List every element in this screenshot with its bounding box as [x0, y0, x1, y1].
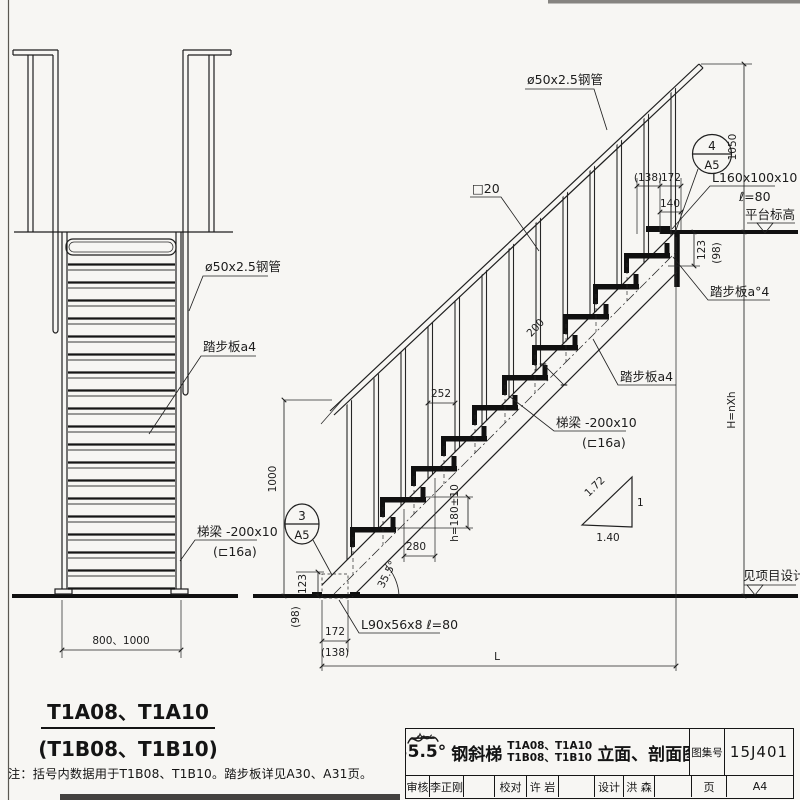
svg-text:(138): (138): [634, 172, 662, 184]
page-label: 页: [691, 776, 726, 797]
svg-text:□20: □20: [472, 181, 500, 196]
svg-text:(138): (138): [321, 647, 349, 659]
svg-text:A5: A5: [294, 528, 309, 542]
svg-text:1.72: 1.72: [582, 474, 607, 499]
caption-models-line2: (T1B08、T1B10): [28, 733, 228, 762]
page-number: A4: [726, 776, 793, 797]
svg-text:平台标高: 平台标高: [745, 207, 795, 222]
detail-bubble-bottom: 3 A5: [285, 504, 332, 575]
svg-text:踏步板a4: 踏步板a4: [203, 339, 256, 354]
designer-signature: [654, 776, 691, 797]
right-label-stringer: 梯梁 -200x10 (⊏16a): [509, 396, 637, 450]
svg-text:123: 123: [297, 574, 309, 594]
title-name: 钢斜梯: [451, 740, 502, 765]
svg-text:172: 172: [661, 172, 681, 184]
reviewer-signature: [463, 776, 494, 797]
svg-text:123: 123: [696, 240, 708, 260]
svg-text:1000: 1000: [267, 466, 279, 493]
svg-text:L90x56x8 ℓ=80: L90x56x8 ℓ=80: [361, 617, 458, 632]
atlas-number: 15J401: [724, 729, 793, 775]
svg-text:(⊏16a): (⊏16a): [582, 435, 626, 450]
svg-text:172: 172: [325, 626, 345, 638]
svg-text:140: 140: [660, 198, 680, 210]
svg-text:ø50x2.5钢管: ø50x2.5钢管: [205, 259, 281, 274]
checker-label: 校对: [494, 776, 526, 797]
svg-text:A5: A5: [704, 158, 719, 172]
svg-text:1.40: 1.40: [596, 532, 619, 544]
svg-text:1050: 1050: [727, 134, 739, 161]
svg-text:35.5°: 35.5°: [375, 559, 399, 590]
slope-triangle: 1.72 1 1.40: [582, 474, 644, 544]
svg-text:L: L: [494, 651, 500, 663]
svg-text:梯梁 -200x10: 梯梁 -200x10: [197, 524, 278, 539]
svg-text:ℓ=80: ℓ=80: [738, 189, 771, 204]
right-label-pipe: ø50x2.5钢管: [525, 72, 607, 130]
drawing-note: 注：括号内数据用于T1B08、T1B10。踏步板详见A30、A31页。: [8, 764, 400, 782]
left-dim-width: 800、1000: [62, 600, 181, 658]
svg-text:H=nXh: H=nXh: [726, 391, 738, 428]
reviewer-name: 李正刚: [429, 776, 463, 797]
right-label-tread-lower: 踏步板a4: [593, 339, 676, 385]
title-block: 35.5° 钢斜梯 T1A08、T1A10 T1B08、T1B10 立面、剖面图…: [405, 728, 794, 799]
svg-text:3: 3: [298, 509, 306, 523]
dim-angle: 35.5°: [375, 559, 399, 596]
svg-text:踏步板a4: 踏步板a4: [620, 369, 673, 384]
checker-name: 许 岩: [526, 776, 558, 797]
tread-stack: [68, 262, 175, 591]
right-view: ø50x2.5钢管 □20 L160x100x10 ℓ=80 平台标高 踏步板a…: [253, 60, 800, 671]
svg-text:4: 4: [708, 139, 716, 153]
dim-123-left: 123 (98): [290, 572, 324, 628]
designer-name: 洪 森: [623, 776, 654, 797]
checker-signature: [558, 776, 594, 797]
svg-text:252: 252: [431, 388, 451, 400]
svg-text:梯梁 -200x10: 梯梁 -200x10: [556, 415, 637, 430]
svg-text:(⊏16a): (⊏16a): [213, 544, 257, 559]
reviewer-label: 审核: [406, 776, 429, 797]
title-suffix: 立面、剖面图: [597, 740, 689, 765]
atlas-label: 图集号: [689, 729, 724, 775]
svg-text:ø50x2.5钢管: ø50x2.5钢管: [527, 72, 603, 87]
right-label-base-cleat: L90x56x8 ℓ=80: [339, 600, 458, 633]
svg-text:(98): (98): [711, 242, 723, 264]
platform-level-marker: 平台标高: [745, 207, 795, 233]
svg-text:(98): (98): [290, 606, 302, 628]
dim-172-bottom: 172 (138): [321, 600, 349, 671]
left-view-caption: T1A08、T1A10 (T1B08、T1B10): [28, 696, 228, 762]
see-project-marker: 见项目设计: [743, 568, 800, 595]
left-label-pipe: ø50x2.5钢管: [189, 259, 281, 311]
svg-text:h=180±10: h=180±10: [449, 484, 461, 542]
baluster-row: [334, 60, 688, 590]
svg-text:280: 280: [406, 541, 426, 553]
svg-text:踏步板a°4: 踏步板a°4: [710, 284, 769, 299]
svg-text:见项目设计: 见项目设计: [743, 568, 800, 583]
svg-text:800、1000: 800、1000: [92, 635, 149, 647]
drawing-canvas: ø50x2.5钢管 踏步板a4 梯梁 -200x10 (⊏16a) 800、10…: [0, 0, 800, 800]
svg-text:L160x100x10: L160x100x10: [712, 170, 797, 185]
drawing-sheet: ø50x2.5钢管 踏步板a4 梯梁 -200x10 (⊏16a) 800、10…: [0, 0, 800, 800]
dim-1000: 1000: [267, 400, 332, 596]
svg-text:1: 1: [637, 497, 644, 509]
left-view: ø50x2.5钢管 踏步板a4 梯梁 -200x10 (⊏16a) 800、10…: [12, 50, 281, 658]
dim-length: L: [322, 651, 676, 666]
designer-label: 设计: [594, 776, 623, 797]
caption-models-line1: T1A08、T1A10: [41, 696, 215, 729]
left-label-stringer: 梯梁 -200x10 (⊏16a): [180, 524, 278, 561]
title-cell: 35.5° 钢斜梯 T1A08、T1A10 T1B08、T1B10 立面、剖面图: [406, 729, 689, 775]
title-models: T1A08、T1A10 T1B08、T1B10: [507, 740, 592, 764]
